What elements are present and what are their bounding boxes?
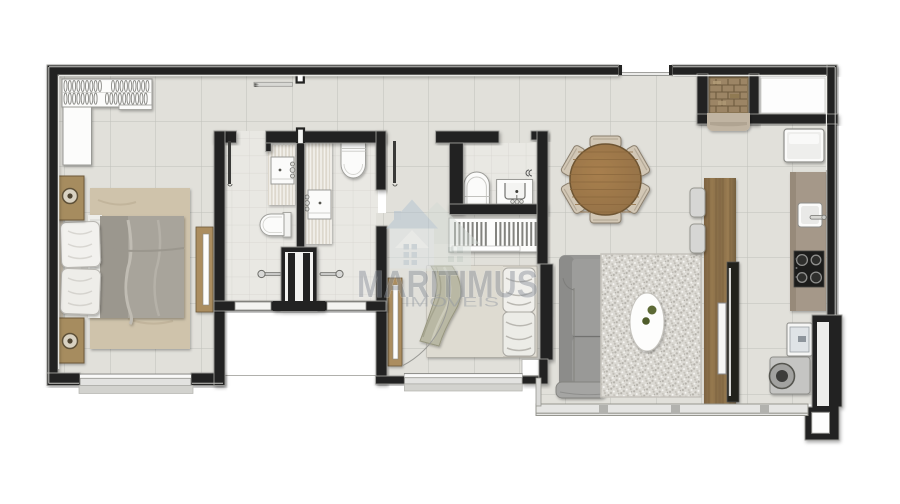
svg-text:IMÓVEIS: IMÓVEIS	[404, 294, 499, 310]
